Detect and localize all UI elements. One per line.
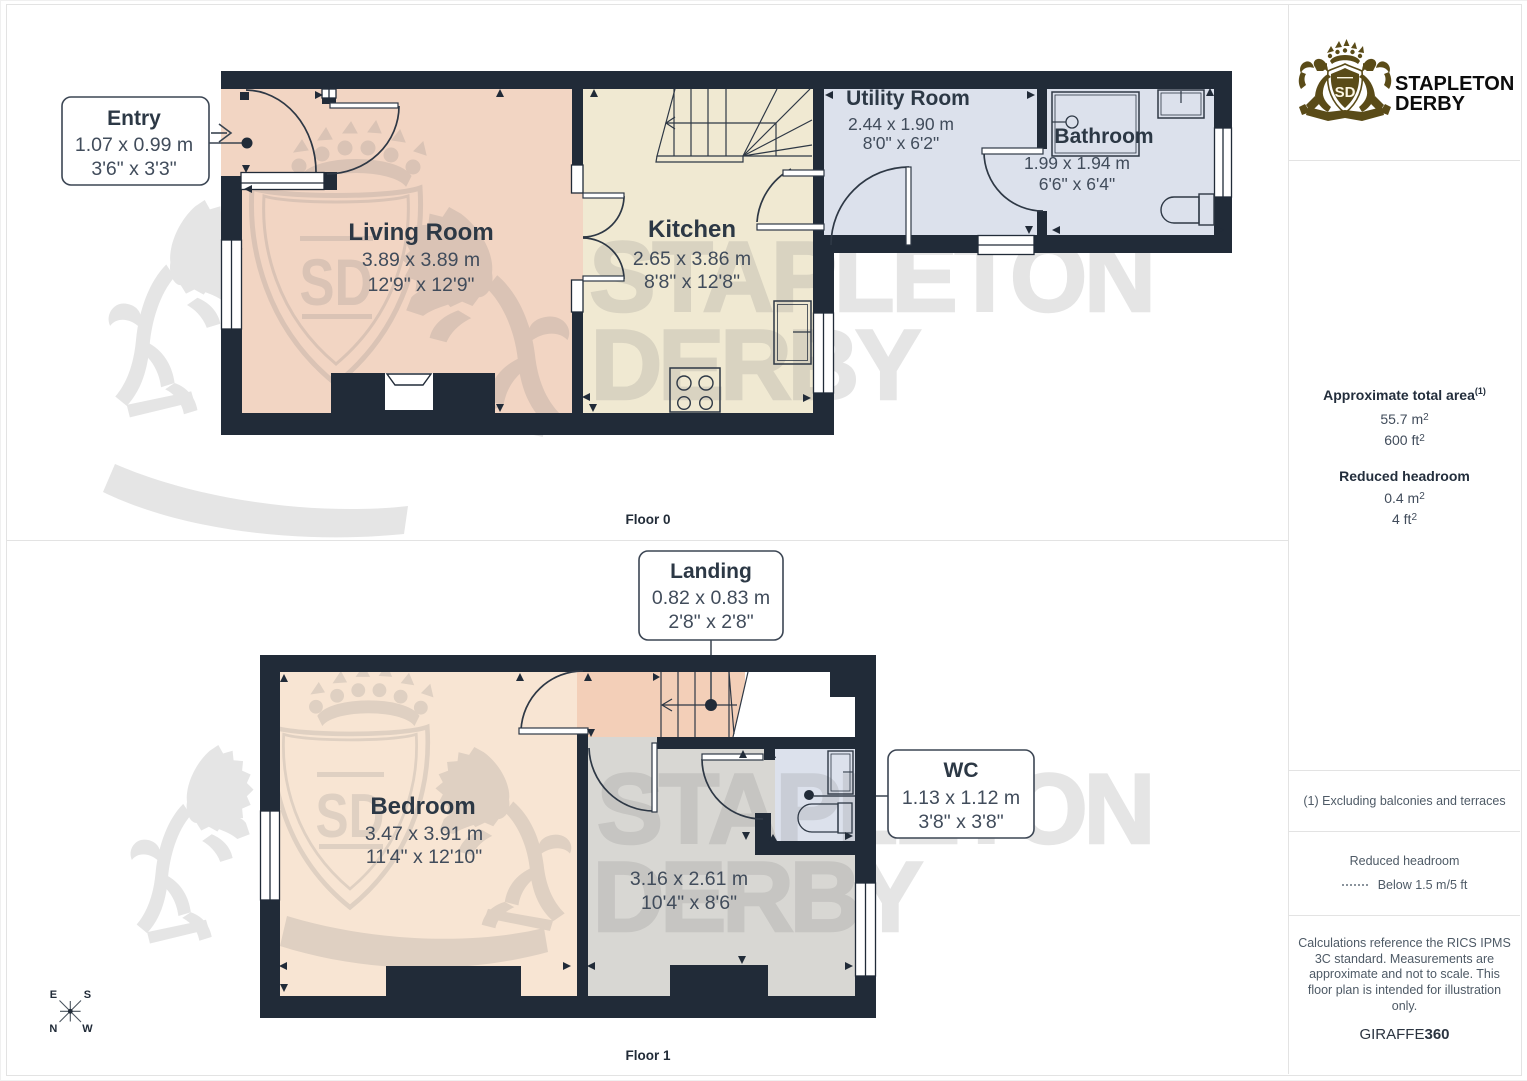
svg-text:0.82 x 0.83 m: 0.82 x 0.83 m — [652, 587, 770, 609]
svg-text:WC: WC — [944, 759, 979, 782]
svg-text:1.07 x 0.99 m: 1.07 x 0.99 m — [75, 134, 193, 156]
svg-text:S: S — [84, 989, 91, 1001]
svg-text:6'6" x 6'4": 6'6" x 6'4" — [1039, 174, 1116, 194]
svg-text:W: W — [82, 1023, 93, 1035]
svg-text:Living Room: Living Room — [348, 219, 493, 246]
svg-text:Bathroom: Bathroom — [1054, 125, 1153, 148]
svg-text:Floor 1: Floor 1 — [625, 1048, 670, 1063]
svg-text:2'8" x 2'8": 2'8" x 2'8" — [668, 611, 753, 633]
svg-text:2.44 x 1.90 m: 2.44 x 1.90 m — [848, 114, 954, 134]
svg-text:8'0" x 6'2": 8'0" x 6'2" — [863, 133, 940, 153]
svg-text:8'8" x 12'8": 8'8" x 12'8" — [644, 271, 740, 293]
svg-text:3'6" x 3'3": 3'6" x 3'3" — [91, 158, 176, 180]
svg-text:3'8" x 3'8": 3'8" x 3'8" — [918, 811, 1003, 833]
svg-text:1.99 x 1.94 m: 1.99 x 1.94 m — [1024, 153, 1130, 173]
svg-text:2.65 x 3.86 m: 2.65 x 3.86 m — [633, 248, 751, 270]
svg-text:11'4" x 12'10": 11'4" x 12'10" — [366, 846, 482, 868]
svg-text:N: N — [49, 1023, 57, 1035]
svg-text:Kitchen: Kitchen — [648, 216, 736, 243]
svg-text:3.47 x 3.91 m: 3.47 x 3.91 m — [365, 823, 483, 845]
svg-text:Floor 0: Floor 0 — [625, 512, 670, 527]
svg-text:12'9" x 12'9": 12'9" x 12'9" — [368, 274, 475, 296]
svg-text:DERBY: DERBY — [591, 309, 921, 420]
svg-text:Entry: Entry — [107, 107, 161, 130]
svg-text:1.13 x 1.12 m: 1.13 x 1.12 m — [902, 787, 1020, 809]
svg-text:E: E — [50, 989, 57, 1001]
svg-text:10'4" x 8'6": 10'4" x 8'6" — [641, 892, 737, 914]
svg-text:3.89 x 3.89 m: 3.89 x 3.89 m — [362, 249, 480, 271]
svg-text:Utility Room: Utility Room — [846, 87, 970, 110]
svg-text:Bedroom: Bedroom — [370, 793, 475, 820]
svg-text:3.16 x 2.61 m: 3.16 x 2.61 m — [630, 868, 748, 890]
svg-text:Landing: Landing — [670, 560, 752, 583]
